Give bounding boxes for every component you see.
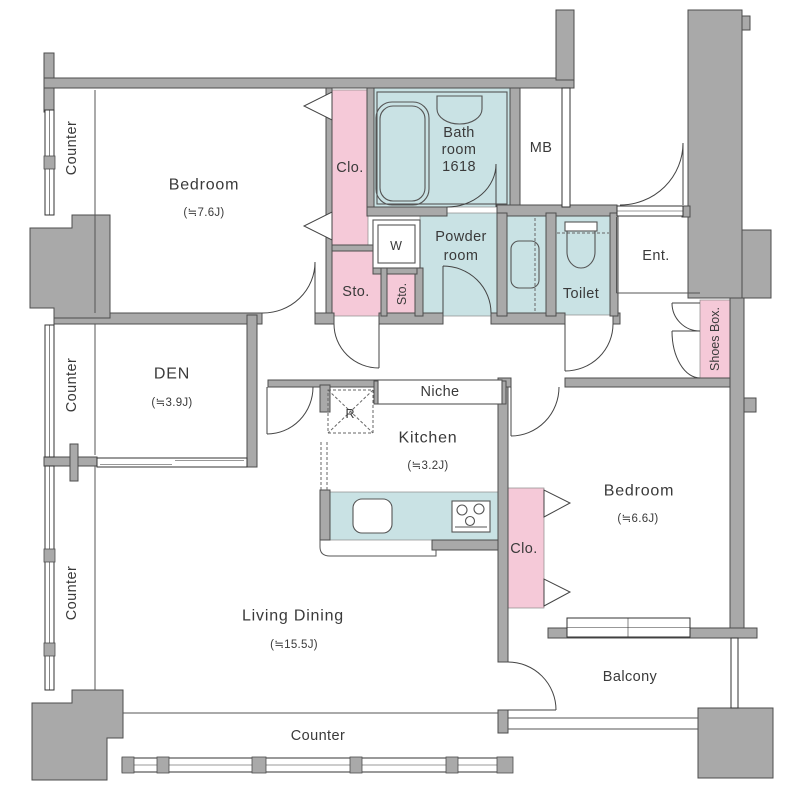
window-mullion (350, 757, 362, 773)
balcony-railing (508, 718, 698, 729)
shoes-box-label: Shoes Box. (708, 307, 722, 371)
counter-left-middle-label: Counter (64, 358, 80, 412)
meter-box-label: MB (530, 140, 553, 156)
storage-door-arc (334, 324, 379, 368)
closet2-door-triangle (544, 579, 570, 606)
bedroom2-door-arc (511, 387, 559, 436)
shoes-box-door-arcs (672, 303, 700, 378)
wall (70, 444, 78, 481)
window-mullion (157, 757, 169, 773)
closet1-door-triangle (304, 212, 332, 240)
kitchen-label: Kitchen (399, 430, 458, 447)
niche-label: Niche (420, 384, 459, 400)
wall (546, 213, 556, 316)
den-size: (≒3.9J) (151, 397, 192, 409)
wall (497, 205, 617, 216)
balcony-side-rail (731, 638, 738, 708)
wall (320, 490, 330, 540)
wall (379, 313, 443, 324)
entrance-door (617, 206, 683, 216)
toilet-tank-icon (565, 222, 597, 231)
kitchen-dashed-wall (321, 442, 327, 490)
wall (44, 78, 574, 88)
counter-left-bottom-label: Counter (64, 566, 80, 620)
wall (367, 207, 447, 216)
sliding-door-frame (97, 458, 247, 467)
wall (565, 378, 735, 387)
wall (326, 88, 332, 313)
storage1-label: Sto. (342, 284, 369, 300)
wall (367, 88, 374, 208)
kitchen-size: (≒3.2J) (407, 460, 448, 472)
powder-room-label-1: Powder (435, 229, 487, 245)
wall (415, 268, 423, 316)
wall (432, 540, 502, 550)
entrance-label: Ent. (642, 248, 669, 264)
floor-plan-svg: Bedroom (≒7.6J) Clo. Bath room 1618 MB W… (0, 0, 800, 789)
wall (744, 398, 756, 412)
kitchen-counter-edge (320, 540, 436, 556)
closet2-door-triangle (544, 490, 570, 517)
window-mullion (44, 643, 55, 656)
bedroom1-size: (≒7.6J) (183, 207, 224, 219)
wall (315, 313, 334, 324)
wall (498, 387, 508, 662)
wall (498, 710, 508, 733)
washer-label: W (390, 239, 402, 253)
wall (247, 315, 257, 467)
bedroom2-label: Bedroom (604, 483, 675, 500)
counter-bottom-label: Counter (291, 728, 345, 744)
balcony-label: Balcony (603, 669, 658, 685)
kitchen-sink-icon (353, 499, 392, 533)
bedroom1-label: Bedroom (169, 177, 240, 194)
den-sliding-door (97, 458, 247, 467)
window-mullion (122, 757, 134, 773)
window-mullion (446, 757, 458, 773)
bedroom1-door-arc (262, 262, 315, 313)
wall (497, 213, 507, 316)
wall (510, 88, 520, 207)
closet1-label: Clo. (336, 160, 363, 176)
living-dining-size: (≒15.5J) (270, 639, 318, 651)
bathroom-label-3: 1618 (442, 159, 476, 175)
toilet-door-arc (565, 324, 613, 371)
closet2-label: Clo. (510, 541, 537, 557)
closet1-door-triangle (304, 92, 332, 120)
bathroom-label-2: room (442, 142, 477, 158)
window-mullion (497, 757, 513, 773)
column (32, 690, 123, 780)
hall-door-arc (267, 387, 313, 434)
front-door-arc (620, 143, 683, 205)
balcony-door-arc (508, 662, 556, 710)
wall (556, 10, 574, 80)
counter-left-top-label: Counter (64, 121, 80, 175)
wall (742, 16, 750, 30)
floor-plan-image: Bedroom (≒7.6J) Clo. Bath room 1618 MB W… (0, 0, 800, 789)
bathroom-label-1: Bath (443, 125, 474, 141)
living-dining-label: Living Dining (242, 608, 344, 625)
column (698, 708, 773, 778)
toilet-label: Toilet (563, 286, 599, 302)
meter-box-partition (562, 88, 570, 207)
den-label: DEN (154, 366, 190, 383)
column (30, 215, 110, 318)
window-mullion (44, 156, 55, 169)
column (688, 10, 742, 298)
powder-room-label-2: room (444, 248, 479, 264)
storage2-label: Sto. (395, 283, 409, 305)
refrigerator-label: R (345, 407, 354, 421)
stove-icon (452, 501, 490, 532)
window-mullion (252, 757, 266, 773)
window-mullion (44, 549, 55, 562)
wall (730, 298, 744, 630)
bedroom2-size: (≒6.6J) (617, 513, 658, 525)
wall (742, 230, 771, 298)
